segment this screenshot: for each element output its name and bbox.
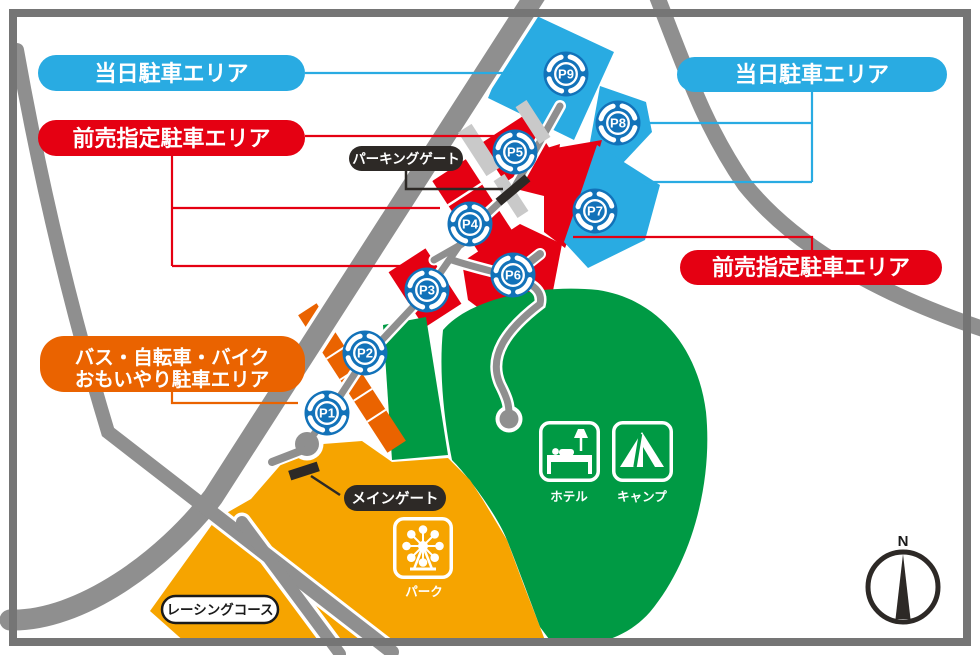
special-area-line2: おもいやり駐車エリア — [75, 368, 270, 391]
marker-p6[interactable]: P6 — [491, 253, 536, 298]
label-parking-gate: パーキングゲート — [349, 146, 463, 171]
marker-label: P1 — [319, 406, 335, 421]
compass-north-label: N — [898, 533, 909, 550]
label-main-gate: メインゲート — [344, 485, 446, 511]
park-label: パーク — [405, 585, 443, 599]
special-area-line1: バス・自転車・バイク — [75, 346, 270, 369]
label-same-day-left: 当日駐車エリア — [38, 55, 305, 91]
marker-label: P5 — [507, 145, 523, 160]
marker-p1[interactable]: P1 — [305, 391, 350, 436]
marker-label: P4 — [462, 217, 479, 232]
marker-label: P8 — [610, 116, 626, 131]
marker-p7[interactable]: P7 — [573, 189, 618, 234]
road-loop-end — [500, 410, 519, 429]
marker-p3[interactable]: P3 — [405, 268, 450, 313]
marker-p4[interactable]: P4 — [448, 202, 493, 247]
marker-p9[interactable]: P9 — [544, 52, 589, 97]
marker-p5[interactable]: P5 — [493, 130, 538, 175]
marker-label: P2 — [357, 346, 373, 361]
map-canvas: P1 P2 P3 P4 P5 P6 P7 P8 P9 ホテル — [0, 0, 980, 655]
marker-label: P3 — [419, 283, 435, 298]
label-advance-left: 前売指定駐車エリア — [38, 120, 305, 156]
advance-right-text: 前売指定駐車エリア — [712, 255, 910, 280]
marker-label: P9 — [558, 67, 574, 82]
hotel-label: ホテル — [550, 490, 588, 504]
racing-course-label: レーシングコース — [166, 602, 273, 618]
parking-gate-text: パーキングゲート — [352, 151, 460, 167]
same-day-right-text: 当日駐車エリア — [735, 62, 889, 87]
label-advance-right: 前売指定駐車エリア — [680, 250, 942, 285]
camp-label: キャンプ — [617, 489, 667, 504]
main-gate-text: メインゲート — [352, 490, 439, 508]
advance-left-text: 前売指定駐車エリア — [72, 126, 270, 151]
parking-map: P1 P2 P3 P4 P5 P6 P7 P8 P9 ホテル — [0, 0, 980, 655]
same-day-left-text: 当日駐車エリア — [94, 61, 248, 86]
label-same-day-right: 当日駐車エリア — [677, 57, 947, 92]
marker-label: P6 — [505, 268, 521, 283]
marker-p8[interactable]: P8 — [596, 101, 641, 146]
label-special-area: バス・自転車・バイク おもいやり駐車エリア — [40, 336, 305, 392]
racing-course-badge: レーシングコース — [162, 596, 278, 623]
marker-p2[interactable]: P2 — [343, 331, 388, 376]
marker-label: P7 — [587, 204, 603, 219]
